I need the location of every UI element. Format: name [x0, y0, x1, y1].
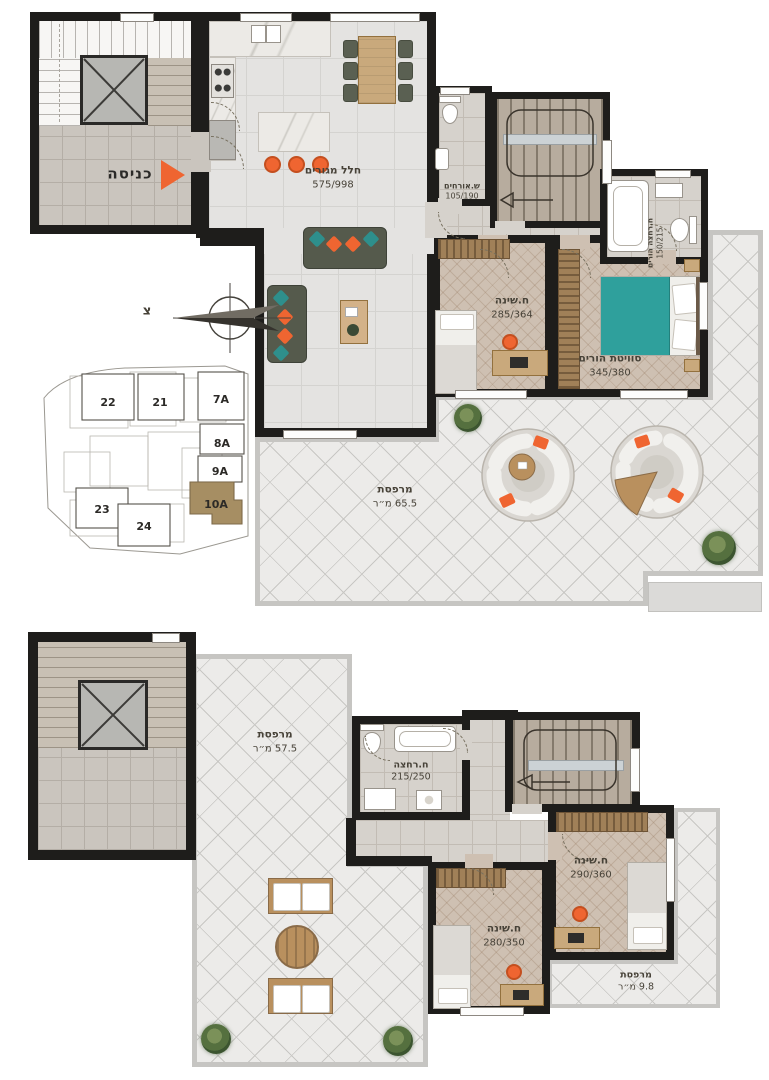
- bed-double: [600, 276, 700, 356]
- toilet-tank: [360, 724, 384, 731]
- dining-chair: [398, 84, 413, 102]
- site-label: 23: [94, 503, 109, 516]
- terrace-large-label: מרפסת 57.5 מ״ר: [253, 728, 297, 755]
- window: [655, 170, 691, 178]
- wall-step: [196, 228, 264, 238]
- stairs-common-top: [39, 21, 191, 58]
- dining-chair: [398, 40, 413, 58]
- nightstand: [684, 259, 700, 272]
- site-label: 24: [136, 520, 152, 533]
- window: [620, 390, 688, 399]
- window: [240, 13, 292, 22]
- lower-floor-plan: מרפסת 57.5 מ״ר ח.רחצה 215/250 ח.שינה 280…: [25, 628, 765, 1078]
- bathtub: [607, 180, 649, 252]
- balcony-step: [648, 582, 762, 612]
- desk-chair: [572, 906, 588, 922]
- site-label: 22: [100, 396, 115, 409]
- laptop: [513, 990, 529, 1000]
- sink: [655, 183, 683, 198]
- stove: [211, 64, 234, 98]
- window: [455, 390, 527, 399]
- round-lounge-set: [478, 425, 578, 525]
- kitchen-sink: [251, 25, 281, 43]
- coffee-table-book: [345, 307, 358, 317]
- living-label: חלל מגורים 575/998: [305, 164, 361, 191]
- window: [120, 13, 154, 22]
- suite-label: סוויטת הורים 345/380: [579, 352, 642, 379]
- terrace-main-label: מרפסת 65.5 מ״ר: [373, 483, 417, 510]
- bed-single: [433, 925, 471, 1009]
- laptop: [568, 933, 584, 943]
- plant: [201, 1024, 231, 1054]
- window: [440, 87, 470, 95]
- stairs-dashed-guide: [59, 24, 60, 122]
- site-map: 22 21 7A 8A 9A 10A 23 24: [30, 358, 260, 563]
- bedroom-a-label: ח.שינה 280/350: [483, 922, 525, 949]
- door-opening: [512, 804, 542, 814]
- desk-chair: [506, 964, 522, 980]
- plant: [383, 1026, 413, 1056]
- site-label: 9A: [212, 465, 229, 478]
- bedroom-upper-label: ח.שינה 285/364: [491, 294, 533, 321]
- entrance-arrow-icon: [161, 160, 185, 190]
- door-opening: [191, 132, 211, 172]
- entrance-label: כניסה: [107, 164, 152, 184]
- toilet-tank: [689, 216, 697, 244]
- guest-wc-label: ש.אורחים 105/190: [444, 182, 480, 203]
- compass-icon: [165, 278, 295, 358]
- outdoor-bench: [268, 978, 333, 1014]
- dining-table: [358, 36, 396, 104]
- window: [283, 430, 357, 439]
- elevator-x-icon: [81, 683, 145, 747]
- desk-chair: [502, 334, 518, 350]
- laptop: [510, 357, 528, 368]
- compass-north-label: צ: [143, 304, 152, 321]
- floorplan-page: { "colors": { "wall": "#1e1d1b", "accent…: [0, 0, 769, 1080]
- window: [666, 838, 675, 902]
- elevator-x-icon: [83, 58, 145, 122]
- outdoor-bench: [268, 878, 333, 914]
- kitchen-island: [258, 112, 330, 152]
- toilet-tank: [439, 96, 461, 103]
- dining-chair: [343, 40, 358, 58]
- stairs-rail-icon: [495, 98, 605, 222]
- door-opening: [560, 235, 590, 249]
- window: [699, 282, 708, 330]
- door-opening: [495, 221, 525, 234]
- bar-stool: [288, 156, 305, 173]
- window: [460, 1007, 524, 1016]
- stairs-rail-icon: [510, 720, 632, 804]
- plant: [702, 531, 736, 565]
- stairs-common-right: [148, 58, 191, 126]
- plant: [454, 404, 482, 432]
- dining-chair: [343, 84, 358, 102]
- wardrobe: [556, 812, 648, 832]
- window: [330, 13, 420, 22]
- site-label: 10A: [204, 498, 228, 511]
- door-opening: [465, 854, 493, 868]
- washer: [364, 788, 396, 810]
- dining-chair: [398, 62, 413, 80]
- bedroom-b-label: ח.שינה 290/360: [570, 854, 612, 881]
- outdoor-table-round: [275, 925, 319, 969]
- bed-single: [627, 862, 667, 950]
- upper-floor-plan: כניסה: [25, 6, 765, 612]
- site-label: 8A: [214, 437, 231, 450]
- round-lounge-set: [607, 422, 707, 522]
- bath-lower-label: ח.רחצה 215/250: [391, 760, 430, 785]
- window: [630, 748, 640, 792]
- nightstand: [684, 359, 700, 372]
- wall-stub: [346, 856, 432, 866]
- parents-bath-label: ח.רחצה הורים 150/215: [645, 218, 665, 268]
- elevator-shaft: [78, 680, 148, 750]
- coffee-table-plant: [347, 324, 359, 336]
- bar-stool: [264, 156, 281, 173]
- window: [152, 633, 180, 643]
- terrace-small-label: מרפסת 9.8 מ״ר: [618, 970, 654, 995]
- bed-single: [435, 310, 477, 394]
- site-label: 7A: [213, 393, 230, 406]
- elevator-shaft: [80, 55, 148, 125]
- door-opening: [548, 832, 562, 860]
- hallway-lower-v: [468, 718, 510, 820]
- sink: [435, 148, 449, 170]
- sink: [416, 790, 442, 810]
- window: [602, 140, 612, 184]
- dining-chair: [343, 62, 358, 80]
- site-label: 21: [152, 396, 167, 409]
